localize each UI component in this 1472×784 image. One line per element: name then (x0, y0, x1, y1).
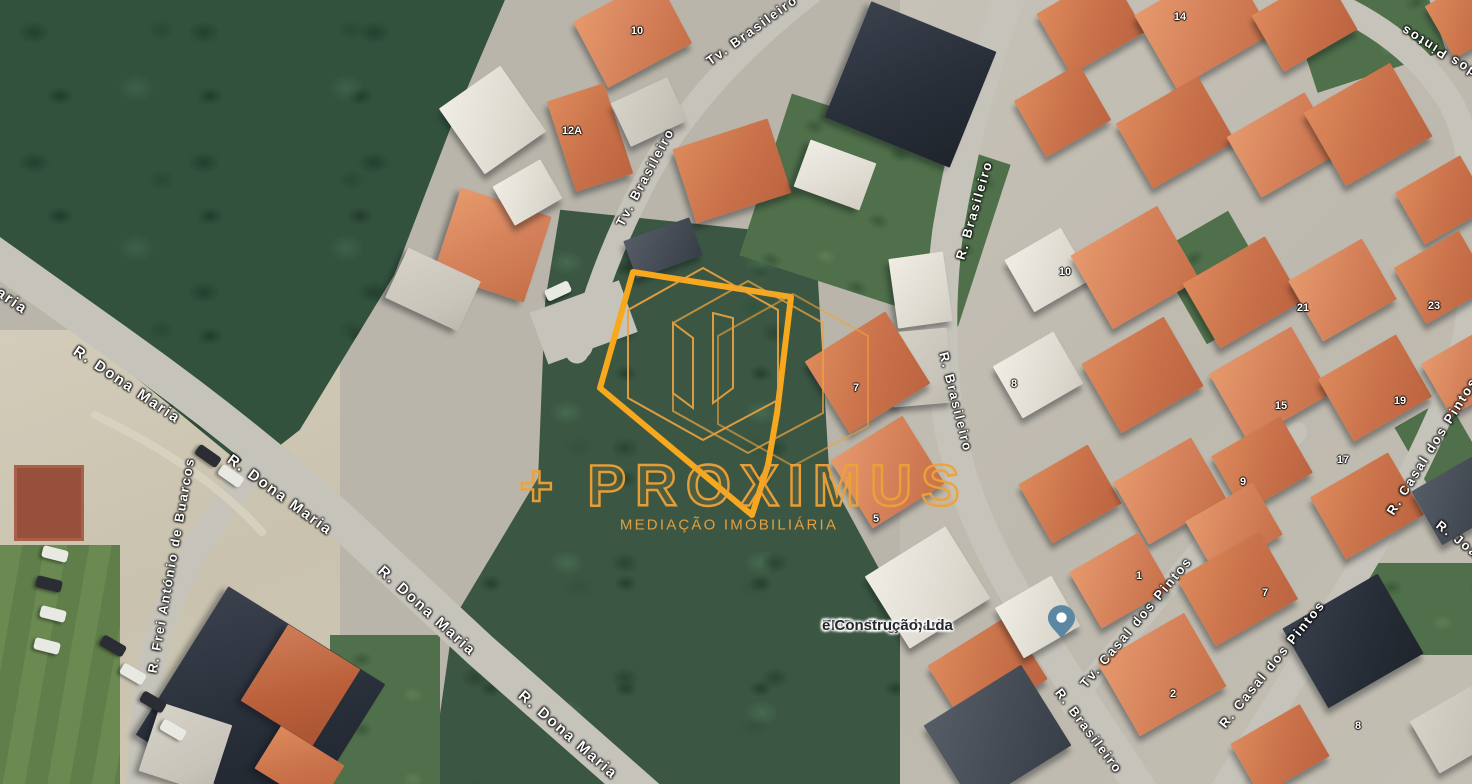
house-number: 7 (853, 382, 859, 394)
poi-label-line2: e Construção, Lda (822, 615, 953, 636)
building (888, 252, 952, 329)
satellite-map-canvas[interactable]: aria Tv. Brasileiro Tv. Brasileiro R. Br… (0, 0, 1472, 784)
house-number: 12A (562, 125, 582, 137)
watermark-brand-text: + PROXIMUS (519, 453, 968, 520)
house-number: 2 (1170, 688, 1176, 700)
house-number: 1 (1136, 570, 1142, 582)
house-number: 10 (1059, 266, 1071, 278)
house-number: 10 (631, 25, 643, 37)
watermark-tagline-text: MEDIAÇÃO IMOBILIÁRIA (620, 517, 838, 534)
poi-pin-icon[interactable] (1048, 605, 1075, 639)
house-number: 17 (1337, 454, 1349, 466)
house-number: 19 (1394, 395, 1406, 407)
house-number: 15 (1275, 400, 1287, 412)
house-number: 23 (1428, 300, 1440, 312)
house-number: 8 (1355, 720, 1361, 732)
house-number: 9 (1240, 476, 1246, 488)
house-number: 8 (1011, 378, 1017, 390)
building (611, 77, 687, 147)
house-number: 7 (1262, 587, 1268, 599)
street-label-tv-brasileiro: Tv. Brasileiro (703, 0, 800, 68)
house-number: 21 (1297, 302, 1309, 314)
building (573, 0, 692, 88)
house-number: 14 (1174, 11, 1186, 23)
red-court (14, 465, 84, 541)
